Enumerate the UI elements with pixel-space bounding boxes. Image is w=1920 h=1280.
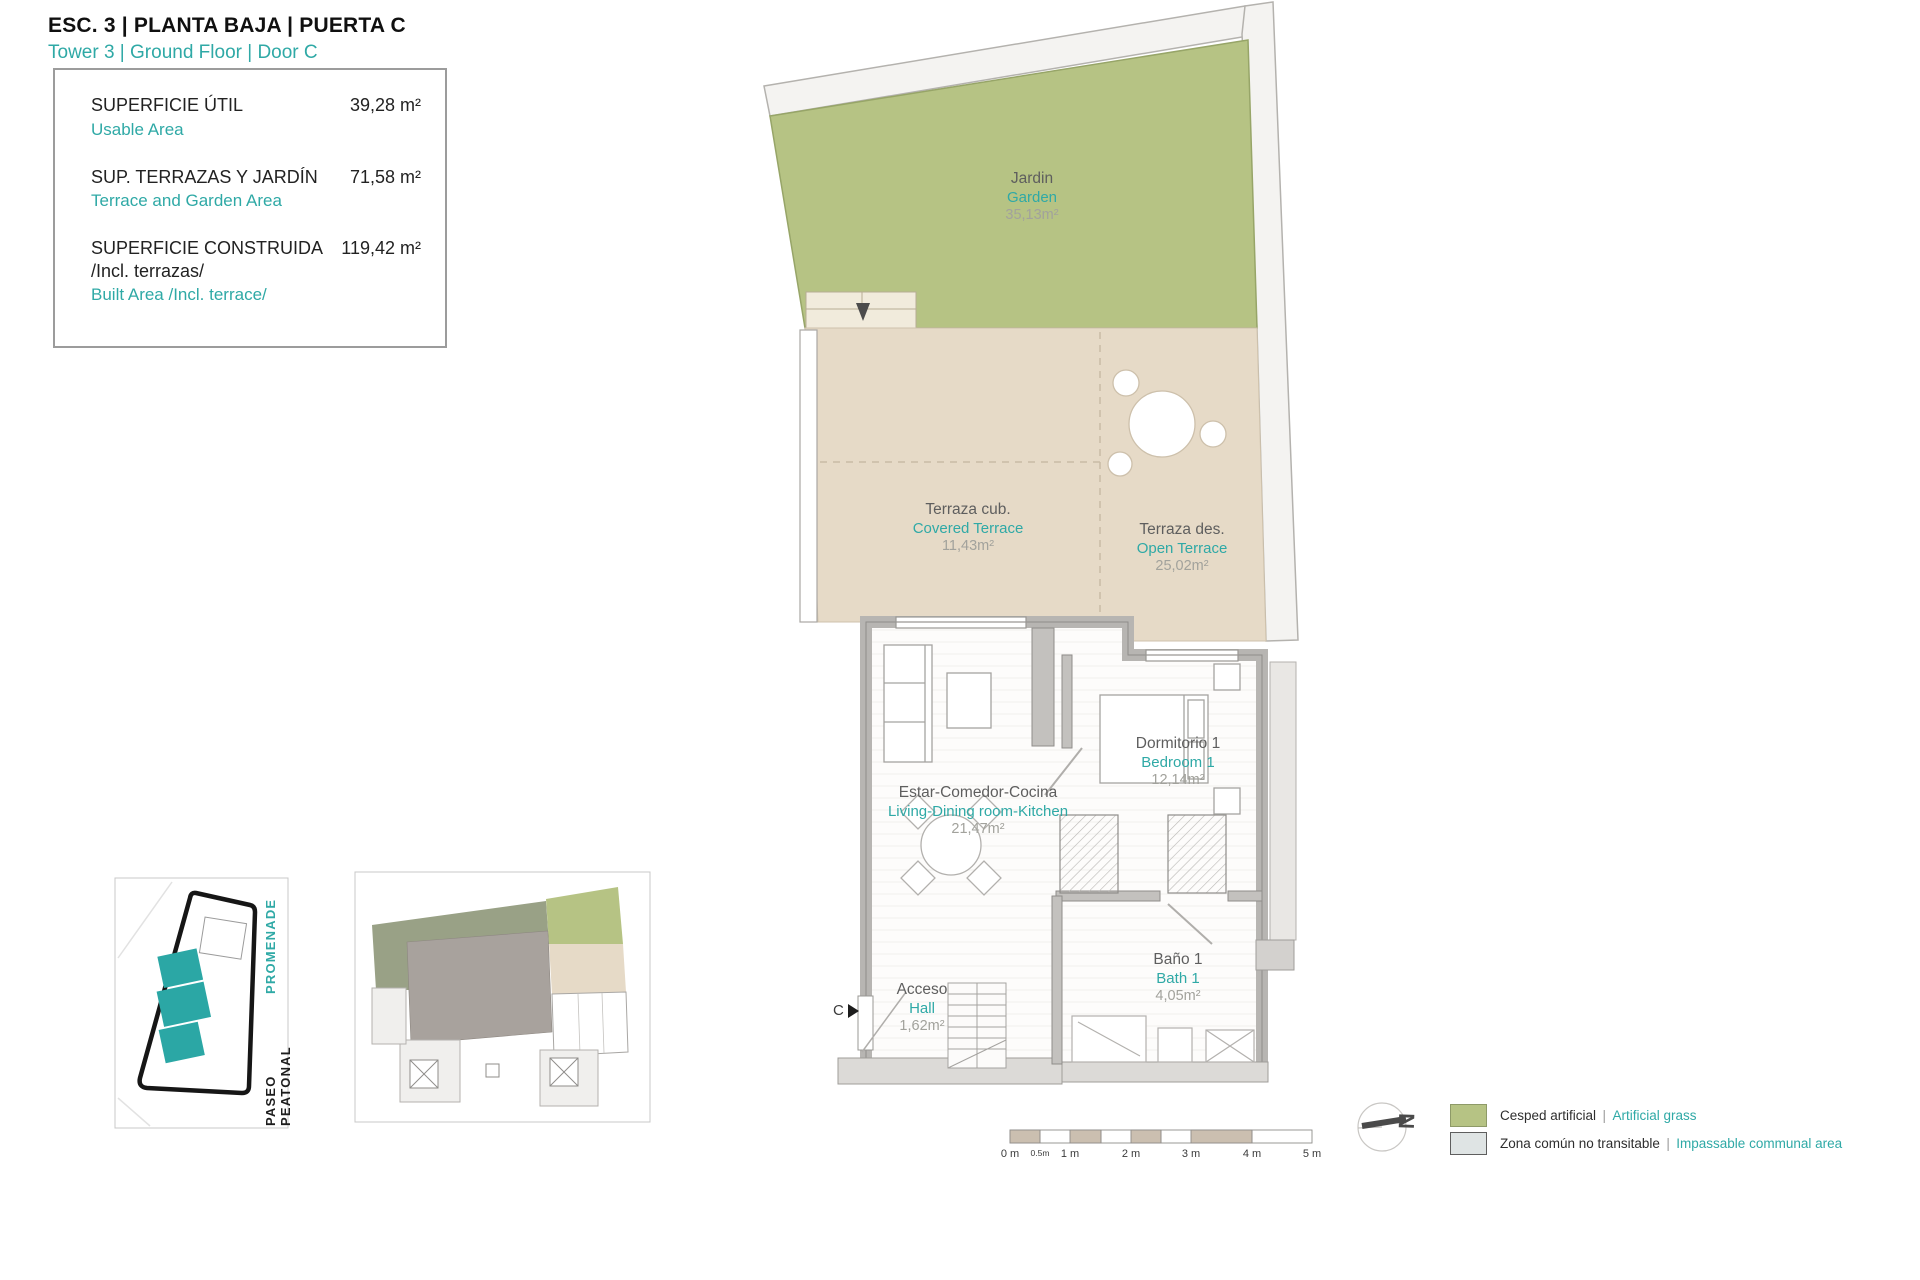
room-label-bedroom: Dormitorio 1 Bedroom 1 12,14m² bbox=[1136, 735, 1220, 789]
scale-tick-0m: 0 m bbox=[1001, 1148, 1019, 1160]
legend-artificial-grass: Cesped artificial | Artificial grass bbox=[1450, 1104, 1697, 1127]
scale-tick-2m: 2 m bbox=[1122, 1148, 1140, 1160]
entry-door-letter: C bbox=[833, 1002, 844, 1019]
street-label-paseo-peatonal: PASEO PEATONAL bbox=[263, 994, 293, 1126]
street-label-promenade: PROMENADE bbox=[263, 884, 278, 994]
area-value: 119,42 m² bbox=[341, 237, 421, 259]
sofa bbox=[884, 645, 932, 762]
area-label-en: Terrace and Garden Area bbox=[91, 190, 318, 212]
legend-swatch-communal bbox=[1450, 1132, 1487, 1155]
scale-tick-3m: 3 m bbox=[1182, 1148, 1200, 1160]
entry-door-marker: C bbox=[833, 1002, 859, 1019]
area-value: 71,58 m² bbox=[350, 166, 421, 188]
floorplan-page: ESC. 3 | PLANTA BAJA | PUERTA C Tower 3 … bbox=[0, 0, 1920, 1280]
area-label-en: Usable Area bbox=[91, 119, 243, 141]
room-label-open-terrace: Terraza des. Open Terrace 25,02m² bbox=[1137, 521, 1228, 575]
floor-overview-thumbnail bbox=[355, 872, 650, 1122]
page-subtitle: Tower 3 | Ground Floor | Door C bbox=[48, 42, 406, 64]
plan-header: ESC. 3 | PLANTA BAJA | PUERTA C Tower 3 … bbox=[48, 14, 406, 64]
scale-tick-1m: 1 m bbox=[1061, 1148, 1079, 1160]
room-label-garden: Jardin Garden 35,13m² bbox=[1005, 170, 1058, 224]
room-label-living: Estar-Comedor-Cocina Living-Dining room-… bbox=[888, 784, 1068, 838]
area-label-es: SUP. TERRAZAS Y JARDÍN bbox=[91, 166, 318, 189]
area-summary-box: SUPERFICIE ÚTIL Usable Area 39,28 m² SUP… bbox=[53, 68, 447, 348]
scale-tick-4m: 4 m bbox=[1243, 1148, 1261, 1160]
scale-tick-05m: 0.5m bbox=[1031, 1148, 1050, 1158]
room-label-covered-terrace: Terraza cub. Covered Terrace 11,43m² bbox=[913, 501, 1024, 555]
area-label-es: SUPERFICIE ÚTIL bbox=[91, 94, 243, 117]
entry-arrow-icon bbox=[848, 1004, 859, 1018]
room-label-hall: Acceso Hall 1,62m² bbox=[897, 981, 948, 1035]
area-row-built: SUPERFICIE CONSTRUIDA /Incl. terrazas/ B… bbox=[91, 237, 421, 306]
area-label-en: Built Area /Incl. terrace/ bbox=[91, 284, 323, 306]
area-label-es2: /Incl. terrazas/ bbox=[91, 260, 323, 283]
area-row-usable: SUPERFICIE ÚTIL Usable Area 39,28 m² bbox=[91, 94, 421, 141]
scale-bar bbox=[1010, 1130, 1312, 1143]
room-label-bath: Baño 1 Bath 1 4,05m² bbox=[1153, 951, 1202, 1005]
area-value: 39,28 m² bbox=[350, 94, 421, 116]
legend-swatch-grass bbox=[1450, 1104, 1487, 1127]
page-title: ESC. 3 | PLANTA BAJA | PUERTA C bbox=[48, 14, 406, 38]
area-row-terrace-garden: SUP. TERRAZAS Y JARDÍN Terrace and Garde… bbox=[91, 166, 421, 213]
scale-tick-5m: 5 m bbox=[1303, 1148, 1321, 1160]
stairs bbox=[948, 983, 1006, 1068]
area-label-es: SUPERFICIE CONSTRUIDA bbox=[91, 237, 323, 260]
terrace-polygon bbox=[805, 328, 1266, 641]
terrace-left-wall bbox=[800, 330, 817, 622]
legend-communal-area: Zona común no transitable | Impassable c… bbox=[1450, 1132, 1842, 1155]
coffee-table bbox=[947, 673, 991, 728]
compass-north-letter: N bbox=[1393, 1113, 1420, 1130]
